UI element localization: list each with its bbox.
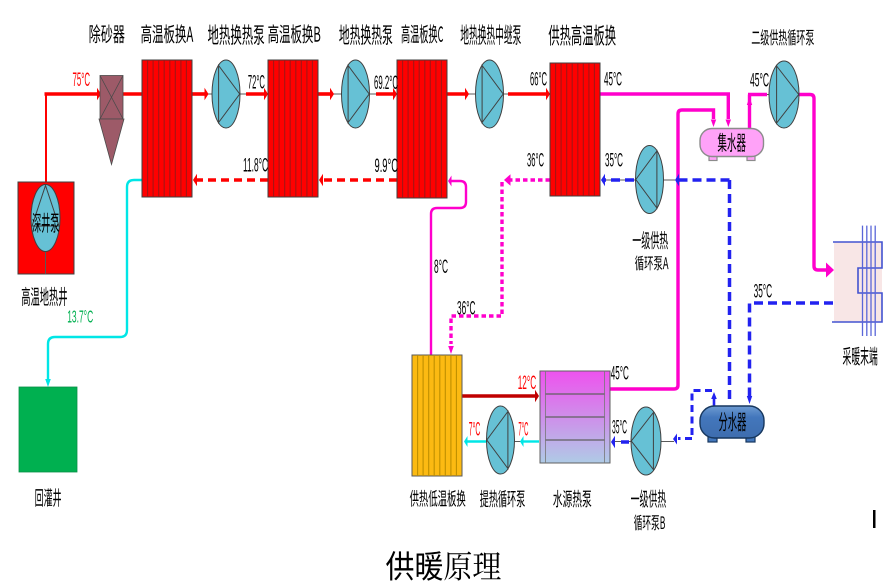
svg-text:66°C: 66°C (530, 70, 547, 91)
svg-text:7°C: 7°C (469, 420, 481, 441)
svg-text:45°C: 45°C (750, 71, 769, 92)
svg-text:36°C: 36°C (457, 299, 476, 320)
svg-text:8°C: 8°C (434, 257, 448, 278)
svg-text:75°C: 75°C (73, 70, 91, 91)
svg-text:36°C: 36°C (527, 151, 544, 172)
svg-text:45°C: 45°C (611, 364, 629, 385)
svg-text:45°C: 45°C (604, 70, 622, 91)
svg-text:35°C: 35°C (754, 282, 773, 303)
svg-text:12°C: 12°C (518, 373, 537, 394)
svg-text:35°C: 35°C (605, 151, 623, 172)
svg-text:7°C: 7°C (518, 420, 528, 441)
svg-text:72°C: 72°C (248, 72, 265, 93)
svg-text:9.9°C: 9.9°C (375, 156, 399, 177)
svg-text:35°C: 35°C (612, 418, 627, 439)
svg-text:11.8°C: 11.8°C (243, 156, 268, 177)
svg-text:13.7°C: 13.7°C (67, 307, 93, 327)
svg-text:69.2°C: 69.2°C (374, 73, 398, 94)
